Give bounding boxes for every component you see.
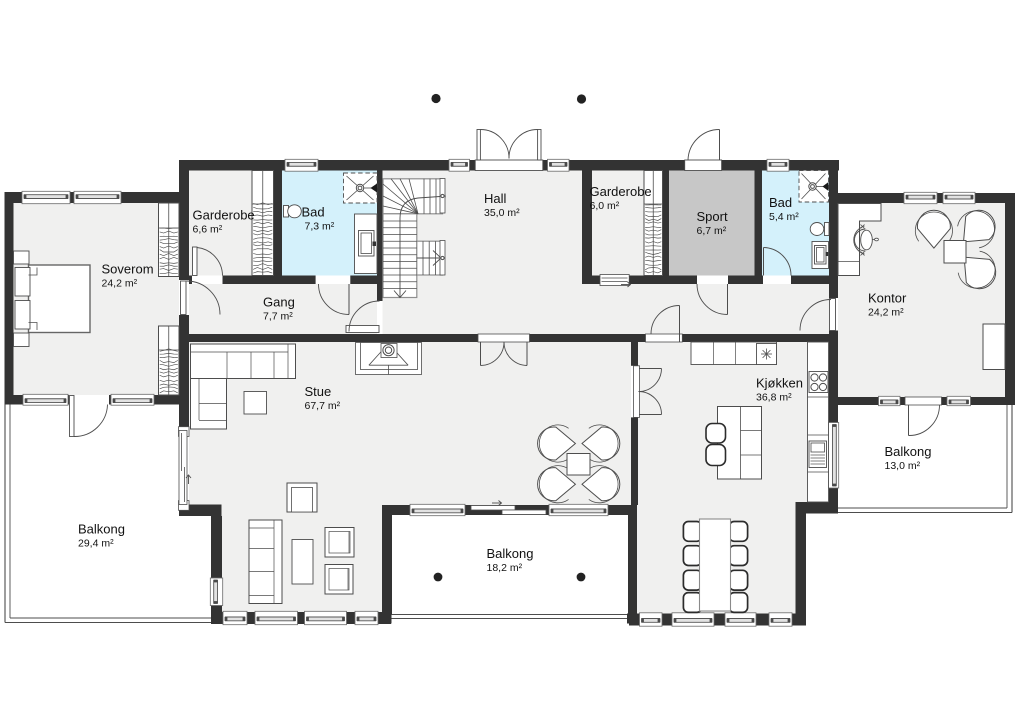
svg-text:6,6 m²: 6,6 m² <box>193 224 223 236</box>
svg-text:7,7 m²: 7,7 m² <box>263 311 293 323</box>
svg-text:Garderobe: Garderobe <box>590 184 652 199</box>
svg-text:Gang: Gang <box>263 295 295 310</box>
svg-text:67,7 m²: 67,7 m² <box>305 400 341 412</box>
svg-text:6,0 m²: 6,0 m² <box>590 200 620 212</box>
svg-text:18,2 m²: 18,2 m² <box>487 562 523 574</box>
svg-text:13,0 m²: 13,0 m² <box>885 460 921 472</box>
svg-text:Kontor: Kontor <box>868 291 907 306</box>
svg-text:Garderobe: Garderobe <box>193 208 255 223</box>
svg-text:Balkong: Balkong <box>885 444 932 459</box>
svg-text:24,2 m²: 24,2 m² <box>868 307 904 319</box>
svg-text:Kjøkken: Kjøkken <box>756 376 803 391</box>
svg-text:Hall: Hall <box>484 191 507 206</box>
svg-text:Balkong: Balkong <box>487 546 534 561</box>
svg-text:24,2 m²: 24,2 m² <box>102 278 138 290</box>
svg-text:Balkong: Balkong <box>78 522 125 537</box>
svg-text:Bad: Bad <box>302 205 325 220</box>
svg-text:Sport: Sport <box>697 209 728 224</box>
svg-text:5,4 m²: 5,4 m² <box>769 211 799 223</box>
svg-text:36,8 m²: 36,8 m² <box>756 392 792 404</box>
svg-text:Stue: Stue <box>305 384 332 399</box>
svg-text:6,7 m²: 6,7 m² <box>697 225 727 237</box>
svg-text:Soverom: Soverom <box>102 262 154 277</box>
svg-text:Bad: Bad <box>769 195 792 210</box>
svg-text:7,3 m²: 7,3 m² <box>305 221 335 233</box>
svg-text:35,0 m²: 35,0 m² <box>484 207 520 219</box>
svg-text:29,4 m²: 29,4 m² <box>78 538 114 550</box>
